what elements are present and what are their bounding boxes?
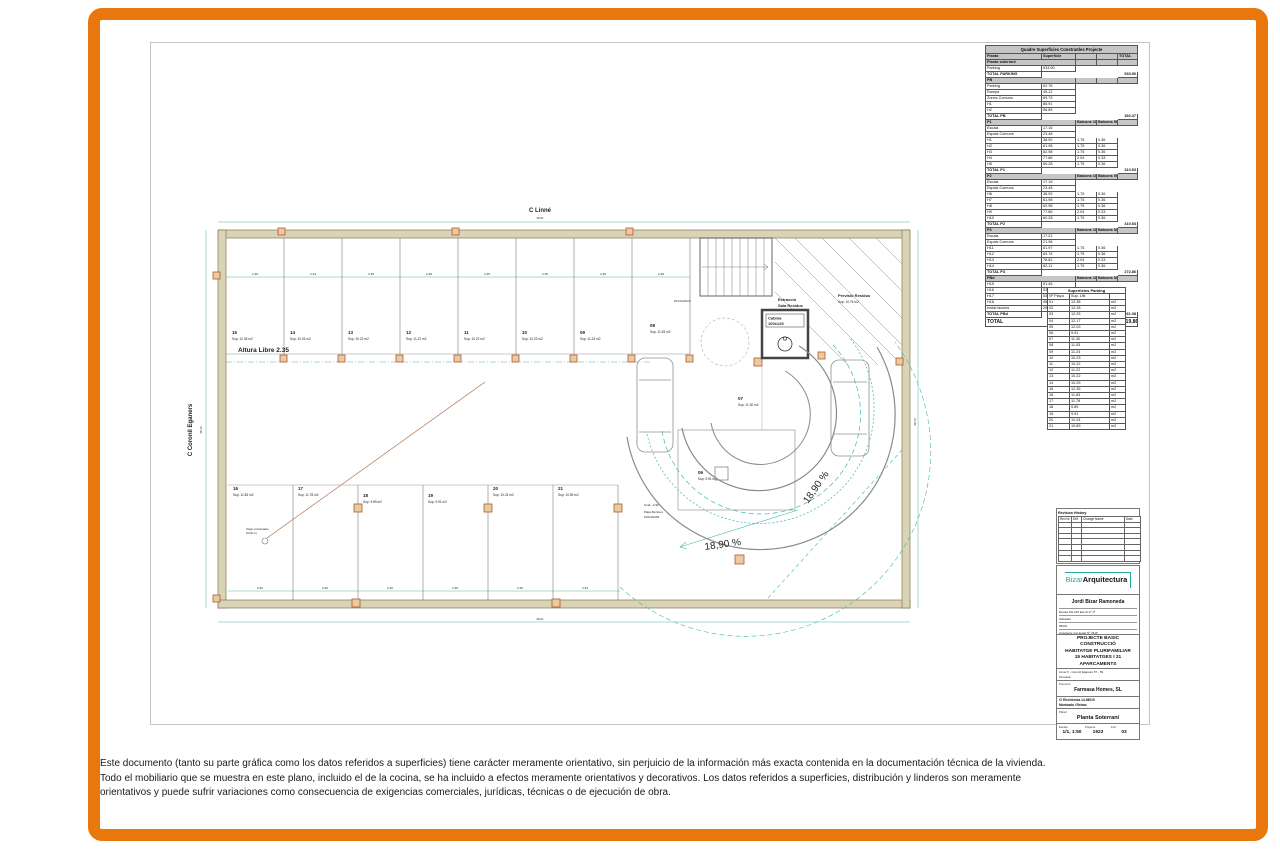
stall-area: Sup: 10.23 m2 — [522, 337, 543, 341]
stall-area: Sup: 12.35 m2 — [232, 337, 253, 341]
origin-label: Origen coordenades — [246, 528, 269, 531]
stall-area: Sup: 11.22 m2 — [406, 337, 427, 341]
svg-text:2.35: 2.35 — [452, 586, 458, 590]
stall-area: Sup: 10.22 m2 — [464, 337, 485, 341]
elevator: Cabina 100x125 — [762, 310, 808, 358]
stall-area: Sup: 11.83 m2 — [233, 493, 254, 497]
extraction-label2: Sala Residus — [778, 303, 804, 308]
stall-number: 07 — [738, 396, 744, 401]
stair — [700, 238, 772, 296]
logo-text-dark: Arquitectura — [1083, 575, 1128, 584]
architect-info: Jordi Bizar Ramoneda Escola Pia 166 Esc.… — [1056, 595, 1140, 635]
turning-circle — [701, 318, 749, 366]
car-outlines — [637, 358, 869, 456]
svg-text:2.24: 2.24 — [310, 272, 316, 276]
elevator-size-label: 100x125 — [768, 321, 784, 326]
promoter-name: Farmasa Homes, SL — [1059, 686, 1137, 695]
logo-text-teal: Bizar — [1066, 575, 1083, 584]
svg-text:2.39: 2.39 — [658, 272, 664, 276]
stall-number: 14 — [290, 330, 296, 335]
promoter-address: C/ Electrònica 14-08915 Montcada i Reixa… — [1056, 697, 1140, 709]
stall-area: Sup: 10.89 m2 — [558, 493, 579, 497]
stall-area: Sup: 11.30 m2 — [738, 403, 759, 407]
scale-value: 1/1, 1:50 — [1059, 729, 1085, 737]
sheet-number: 03 — [1111, 729, 1137, 737]
dim-label: 39.01 — [537, 216, 544, 220]
svg-text:2.40: 2.40 — [322, 586, 328, 590]
revision-history-box: Revision History Rev.Nr Drft Change Name… — [1056, 508, 1140, 564]
stall-number: 13 — [348, 330, 354, 335]
architect-city: Sabadell — [1059, 615, 1137, 622]
stall-area: Sup: 11.78 m2 — [298, 493, 319, 497]
stall-number: 17 — [298, 486, 304, 491]
table-row — [1059, 556, 1141, 562]
clearance-height-label: Altura Libre 2.35 — [238, 347, 289, 354]
stall-area: Sup: 11.53 m2 — [650, 330, 671, 334]
ramp-curve — [620, 338, 931, 636]
previsio-sup: Sup: 10.76 m2 — [838, 300, 859, 304]
parking-stall-labels-bottom: 16 Sup: 11.83 m2 17 Sup: 11.78 m2 18 Sup… — [233, 486, 579, 504]
level-label: Cota: -2.90 — [644, 503, 659, 507]
revision-table: Rev.Nr Drft Change Name Date — [1058, 516, 1141, 562]
stall-number: 06 — [698, 470, 704, 475]
legal-disclaimer: Este documento (tanto su parte gráfica c… — [100, 757, 1210, 801]
firefighter-space-size: 100x100x50 — [644, 515, 660, 519]
previsio-label: Previsió Residus — [838, 293, 871, 298]
architect-address: Escola Pia 166 Esc.D 2º 1ª — [1059, 608, 1137, 615]
promoter-block: Promotor Farmasa Homes, SL — [1056, 681, 1140, 697]
svg-text:2.62: 2.62 — [257, 586, 263, 590]
stall-number: 21 — [558, 486, 564, 491]
dim-label: 38.14 — [913, 418, 917, 425]
extraction-label: Extracció — [778, 297, 797, 302]
svg-text:2.35: 2.35 — [542, 272, 548, 276]
title-block: BizarArquitectura Jordi Bizar Ramoneda E… — [1056, 565, 1140, 740]
drawing-name-block: Plànol Planta Soterrani — [1056, 709, 1140, 724]
svg-text:2.43: 2.43 — [582, 586, 588, 590]
origin-label2: (±0.00 m) — [246, 532, 257, 535]
project-title: PROJECTE BASIC CONSTRUCCIÓ HABITATGE PLU… — [1056, 635, 1140, 669]
svg-text:2.20: 2.20 — [517, 586, 523, 590]
stall-area: Sup: 10.22 m2 — [348, 337, 369, 341]
parking-surfaces-table: Superfícies Parking Nº Plaça Sup. Útil 0… — [1047, 287, 1126, 430]
stall-number: 19 — [428, 493, 434, 498]
stall-number: 08 — [650, 323, 656, 328]
stall-area: Sup: 9.89 m2 — [363, 500, 382, 504]
stall-area: Sup: 11.24 m2 — [580, 337, 601, 341]
perimeter-walls — [218, 230, 910, 608]
site-address: Linné 5 - Coronil Eganers 57 - 59 Terras… — [1056, 669, 1140, 681]
architect-zip: 08201 — [1059, 622, 1137, 629]
disclaimer-line-1: Este documento (tanto su parte gráfica c… — [100, 757, 1210, 772]
stall-number: 20 — [493, 486, 499, 491]
stall-number: 11 — [464, 330, 469, 335]
disclaimer-line-2: Todo el mobiliario que se muestra en est… — [100, 772, 1210, 787]
drawing-name: Planta Soterrani — [1059, 714, 1137, 722]
svg-text:2.35: 2.35 — [368, 272, 374, 276]
svg-text:2.39: 2.39 — [426, 272, 432, 276]
project-number: 1923 — [1085, 729, 1111, 737]
street-label-top: C Linné — [529, 208, 552, 214]
stall-dividers-bottom — [228, 485, 618, 600]
elevator-label: Cabina — [768, 316, 782, 321]
stall-number: 09 — [580, 330, 586, 335]
dimension-lines — [206, 222, 918, 622]
origin-marker: Origen coordenades (±0.00 m) — [246, 382, 485, 544]
stall-area: Sup: 10.24 m2 — [493, 493, 514, 497]
svg-text:2.25: 2.25 — [484, 272, 490, 276]
architect-logo: BizarArquitectura — [1056, 565, 1140, 595]
stall-number: 18 — [363, 493, 369, 498]
parking-stall-labels-top: 15 Sup: 12.35 m2 14 Sup: 10.25 m2 13 Sup… — [232, 323, 671, 341]
street-label-left: C Coronil Eganers — [188, 403, 194, 456]
stall-number: 10 — [522, 330, 528, 335]
stall-area: Sup: 10.25 m2 — [290, 337, 311, 341]
stall-number: 15 — [232, 330, 238, 335]
disclaimer-line-3: orientativos y puede sufrir variaciones … — [100, 786, 1210, 801]
structural-columns — [213, 228, 903, 607]
surfaces-summary-table: Quadre Superfícies Construïdes Projecte … — [985, 45, 1138, 327]
plan-sheet-page: C Linné 39.01 C Coronil Eganers 38.13 39… — [0, 0, 1280, 853]
table-row: 2110.89m2 — [1048, 424, 1126, 430]
surfaces-table-title: Quadre Superfícies Construïdes Projecte — [986, 46, 1138, 54]
equipment-label: PR 100x45xC5 — [674, 300, 691, 303]
dim-label: 38.13 — [199, 426, 203, 433]
stall-number: 12 — [406, 330, 412, 335]
firefighter-space-label: Plaça Bombers — [644, 510, 664, 514]
scale-block: Escala 1/1, 1:50 Projecte 1923 Full 03 — [1056, 724, 1140, 740]
stall-area: Sup: 9.91 m2 — [428, 500, 447, 504]
dim-label: 39.01 — [537, 617, 544, 621]
svg-text:2.20: 2.20 — [387, 586, 393, 590]
architect-name: Jordi Bizar Ramoneda — [1059, 599, 1137, 605]
stall-number: 16 — [233, 486, 239, 491]
svg-text:2.25: 2.25 — [600, 272, 606, 276]
svg-text:2.39: 2.39 — [252, 272, 258, 276]
